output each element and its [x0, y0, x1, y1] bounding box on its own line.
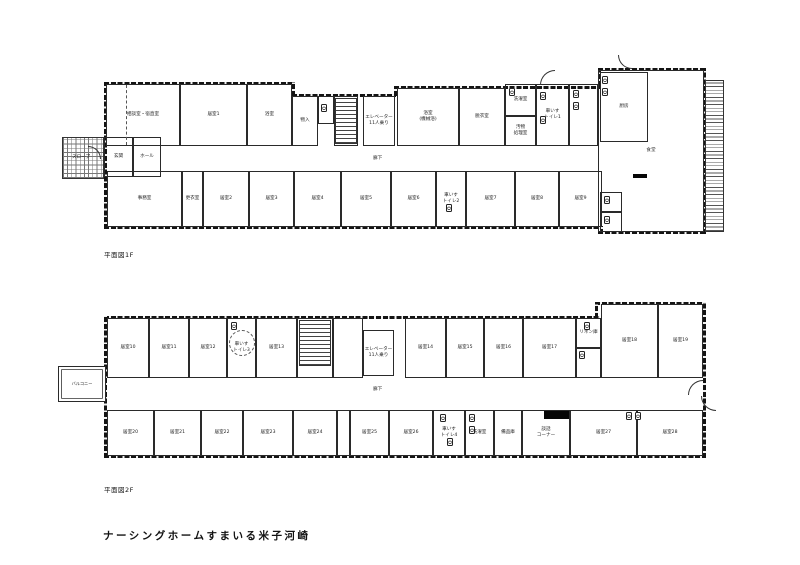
- room-label: 居室14: [418, 345, 433, 351]
- room: 居室28: [637, 410, 703, 456]
- room: 居室16: [484, 318, 523, 378]
- room: 更衣室: [182, 171, 203, 227]
- room-label: 居室3: [265, 196, 277, 202]
- washer-icon: [573, 90, 579, 98]
- room: 居室7: [466, 171, 515, 227]
- room: 居室26: [389, 410, 433, 456]
- room: バルコニー: [58, 366, 106, 402]
- room: 居室10: [107, 318, 149, 378]
- room: 居室24: [293, 410, 337, 456]
- room-label: リネン庫: [579, 330, 597, 336]
- room-label: 居室15: [457, 345, 472, 351]
- room: 居室11: [149, 318, 189, 378]
- door-swing-arc: [688, 380, 703, 395]
- room: [297, 318, 333, 378]
- room-label: 汚物 処理室: [514, 125, 528, 137]
- toilet-icon: [540, 92, 546, 100]
- room: 車いす トイレ4: [433, 410, 465, 456]
- room: 居室2: [203, 171, 249, 227]
- text-label: 廊下: [373, 386, 382, 392]
- room-label: 厨房: [619, 104, 628, 110]
- room-label: 相談室・宿直室: [127, 112, 159, 118]
- door-swing-arc: [618, 55, 632, 69]
- washer-icon: [602, 88, 608, 96]
- room: 居室4: [294, 171, 341, 227]
- wall: [595, 302, 598, 318]
- washer-icon: [440, 414, 446, 422]
- room-label: 居室17: [542, 345, 557, 351]
- room-label: 洗濯室: [514, 97, 528, 103]
- wall: [703, 302, 706, 458]
- room-label: 脱衣室: [475, 114, 489, 120]
- washer-icon: [469, 414, 475, 422]
- room-label: 居室2: [220, 196, 232, 202]
- toilet-icon: [446, 204, 452, 212]
- room: 居室8: [515, 171, 559, 227]
- washer-icon: [602, 76, 608, 84]
- plan-caption-2f: 平面図2F: [104, 484, 134, 494]
- washer-icon: [579, 351, 585, 359]
- room-label: 玄関: [114, 154, 123, 160]
- toilet-icon: [604, 216, 610, 224]
- room-label: 居室26: [403, 430, 418, 436]
- room-label: 居室25: [362, 430, 377, 436]
- room: 居室22: [201, 410, 243, 456]
- counter-block: [544, 411, 569, 419]
- floorplan-page: 食堂厨房相談室・宿直室居室1浴室物入エレベーター 11人乗り浴室 (機械浴)脱衣…: [0, 0, 800, 565]
- toilet-icon: [604, 196, 610, 204]
- toilet-icon: [321, 104, 327, 112]
- room: 居室13: [256, 318, 297, 378]
- room: 備品庫: [494, 410, 522, 456]
- toilet-icon: [584, 322, 590, 330]
- room: 脱衣室: [459, 88, 505, 146]
- room-label: 居室20: [123, 430, 138, 436]
- room: 居室25: [350, 410, 389, 456]
- text-label: スロープ: [72, 154, 90, 160]
- room-label: 事務室: [138, 196, 152, 202]
- room-label: 居室21: [170, 430, 185, 436]
- room: 居室3: [249, 171, 294, 227]
- room-label: 居室10: [120, 345, 135, 351]
- room-label: 食堂: [646, 148, 655, 154]
- counter-block: [633, 174, 647, 178]
- room: 居室20: [107, 410, 154, 456]
- room-label: エレベーター 11人乗り: [365, 115, 393, 127]
- room: 居室21: [154, 410, 201, 456]
- room: 居室5: [341, 171, 391, 227]
- room-label: 居室5: [360, 196, 372, 202]
- room: 車いす トイレ2: [436, 171, 466, 227]
- room-label: 居室16: [496, 345, 511, 351]
- room: 居室14: [405, 318, 446, 378]
- room: [337, 410, 350, 456]
- room: 浴室: [247, 84, 292, 146]
- room-label: エレベーター 11人乗り: [365, 347, 393, 359]
- wheelchair-turning-circle: [229, 330, 255, 356]
- toilet-icon: [447, 438, 453, 446]
- door-swing-arc: [540, 70, 555, 85]
- room-label: 居室12: [200, 345, 215, 351]
- room-label: 居室27: [596, 430, 611, 436]
- room: 物入: [292, 96, 318, 146]
- room-label: 居室9: [574, 196, 586, 202]
- room-label: 居室7: [484, 196, 496, 202]
- movable-partition-line: [126, 85, 127, 145]
- room-label: 備品庫: [501, 430, 515, 436]
- room-label: 更衣室: [186, 196, 200, 202]
- room-label: 居室28: [662, 430, 677, 436]
- room-label: 居室24: [307, 430, 322, 436]
- room-label: ホール: [140, 154, 154, 160]
- toilet-icon: [231, 322, 237, 330]
- room-label: 居室1: [207, 112, 219, 118]
- room-label: 居室23: [260, 430, 275, 436]
- room: 浴室 (機械浴): [397, 88, 459, 146]
- room: [333, 318, 363, 378]
- toilet-icon: [626, 412, 632, 420]
- room-label: 居室11: [161, 345, 176, 351]
- room: 居室23: [243, 410, 293, 456]
- room-label: 居室19: [673, 338, 688, 344]
- room-label: 居室13: [269, 345, 284, 351]
- washer-icon: [509, 88, 515, 96]
- room-label: 居室4: [311, 196, 323, 202]
- room: 居室17: [523, 318, 576, 378]
- room: エレベーター 11人乗り: [363, 96, 395, 146]
- washer-icon: [469, 426, 475, 434]
- plan-caption-1f: 平面図1F: [104, 249, 134, 259]
- room-label: 浴室 (機械浴): [419, 111, 436, 123]
- drawing-title: ナーシングホームすまいる米子河崎: [103, 528, 310, 543]
- room-label: 居室18: [622, 338, 637, 344]
- room: 汚物 処理室: [505, 116, 536, 146]
- room: 居室9: [559, 171, 602, 227]
- toilet-icon: [540, 116, 546, 124]
- room: 居室6: [391, 171, 436, 227]
- room: [334, 96, 358, 146]
- room: 居室18: [601, 304, 658, 378]
- room: 居室1: [180, 84, 247, 146]
- room-label: バルコニー: [72, 381, 93, 386]
- room-label: 浴室: [265, 112, 274, 118]
- room-label: 居室8: [531, 196, 543, 202]
- room: 居室19: [658, 304, 703, 378]
- ladder-hatch: [705, 80, 724, 232]
- text-label: 廊下: [373, 155, 382, 161]
- room-label: 物入: [300, 118, 309, 124]
- room: 事務室: [107, 171, 182, 227]
- room-label: 居室22: [214, 430, 229, 436]
- room-label: 車いす トイレ1: [544, 109, 561, 121]
- room-label: 居室6: [407, 196, 419, 202]
- room: 居室12: [189, 318, 227, 378]
- room: エレベーター 11人乗り: [363, 330, 394, 376]
- room-label: 談話 コーナー: [537, 427, 555, 439]
- washer-icon: [573, 102, 579, 110]
- room: 居室15: [446, 318, 484, 378]
- toilet-icon: [635, 412, 641, 420]
